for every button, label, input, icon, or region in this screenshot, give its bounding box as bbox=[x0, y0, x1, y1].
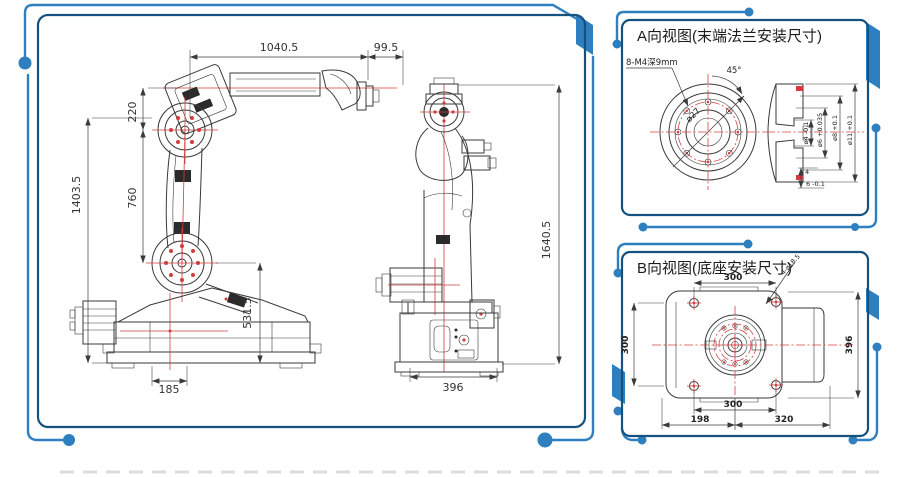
front-view-dimensions: 1640.5 396 bbox=[410, 85, 559, 394]
dim-base-width-side: 185 bbox=[159, 383, 180, 396]
trace-node-dot bbox=[745, 8, 754, 17]
dim-shoulder-drop: 220 bbox=[126, 102, 139, 123]
drawing-canvas: 1040.5 99.5 220 760 1403.5 531.5 185 bbox=[0, 0, 900, 477]
dim-lower-arm: 760 bbox=[126, 188, 139, 209]
section-dim-1: ø4 -0.1 bbox=[802, 122, 810, 145]
section-dim-4: ø11 +0.1 bbox=[846, 115, 854, 145]
dim-top: 300 bbox=[724, 273, 743, 283]
base-assembly-side bbox=[70, 284, 321, 370]
flange-view-title: A向视图(末端法兰安装尺寸) bbox=[637, 28, 822, 45]
dim-total-height-front: 1640.5 bbox=[540, 221, 553, 260]
trace-node-dot bbox=[639, 223, 648, 232]
trace-node-dot bbox=[63, 434, 75, 446]
pitch-circle-label: ø27 bbox=[684, 106, 702, 124]
base-view-title: B向视图(底座安装尺寸) bbox=[637, 260, 792, 277]
section-dim-3: ø8 +0.1 bbox=[831, 115, 839, 141]
angle-label: 45° bbox=[726, 66, 741, 76]
trace-node-dot bbox=[538, 433, 553, 448]
base-assembly-front bbox=[395, 302, 503, 376]
j3-motor-housing bbox=[164, 63, 238, 135]
flange-view: A向视图(末端法兰安装尺寸) ø27 45° 8-M4深9mm bbox=[626, 28, 864, 190]
dim-base-height: 531.5 bbox=[241, 297, 254, 329]
side-view-dimensions: 1040.5 99.5 220 760 1403.5 531.5 185 bbox=[70, 41, 403, 396]
trace-node-dot bbox=[851, 223, 859, 231]
dim-left: 300 bbox=[621, 336, 631, 355]
trace-node-dot bbox=[744, 240, 753, 249]
dim-arm-length: 1040.5 bbox=[260, 41, 299, 54]
trace-node-dot bbox=[19, 57, 32, 70]
dim-right: 396 bbox=[845, 336, 855, 355]
boss-width-label: 4 bbox=[805, 168, 809, 176]
boss-depth-label: 6 -0.1 bbox=[806, 180, 825, 188]
thread-note: 8-M4深9mm bbox=[626, 58, 678, 68]
section-dim-2: ø6 +0.035 bbox=[816, 113, 824, 147]
robot-side-view: 1040.5 99.5 220 760 1403.5 531.5 185 bbox=[70, 41, 403, 396]
base-view-dimensions: 300 300 396 300 198 320 4-ø18.5 bbox=[621, 253, 858, 429]
dim-base-width-front: 396 bbox=[443, 381, 464, 394]
flange-section-view: ø4 -0.1 ø6 +0.035 ø8 +0.1 ø11 +0.1 4 6 -… bbox=[766, 84, 864, 188]
j2-joint bbox=[146, 228, 218, 302]
robot-dimension-sheet: 1040.5 99.5 220 760 1403.5 531.5 185 bbox=[0, 0, 900, 477]
robot-front-view: 1640.5 396 bbox=[376, 78, 559, 394]
dim-bottom-right: 320 bbox=[775, 415, 794, 425]
dim-total-height-side: 1403.5 bbox=[70, 176, 83, 215]
dim-bottom-left: 198 bbox=[691, 415, 710, 425]
dim-bottom: 300 bbox=[724, 400, 743, 410]
base-view: B向视图(底座安装尺寸) bbox=[621, 253, 858, 430]
base-view-panel bbox=[622, 252, 868, 436]
dim-wrist-offset: 99.5 bbox=[374, 41, 399, 54]
